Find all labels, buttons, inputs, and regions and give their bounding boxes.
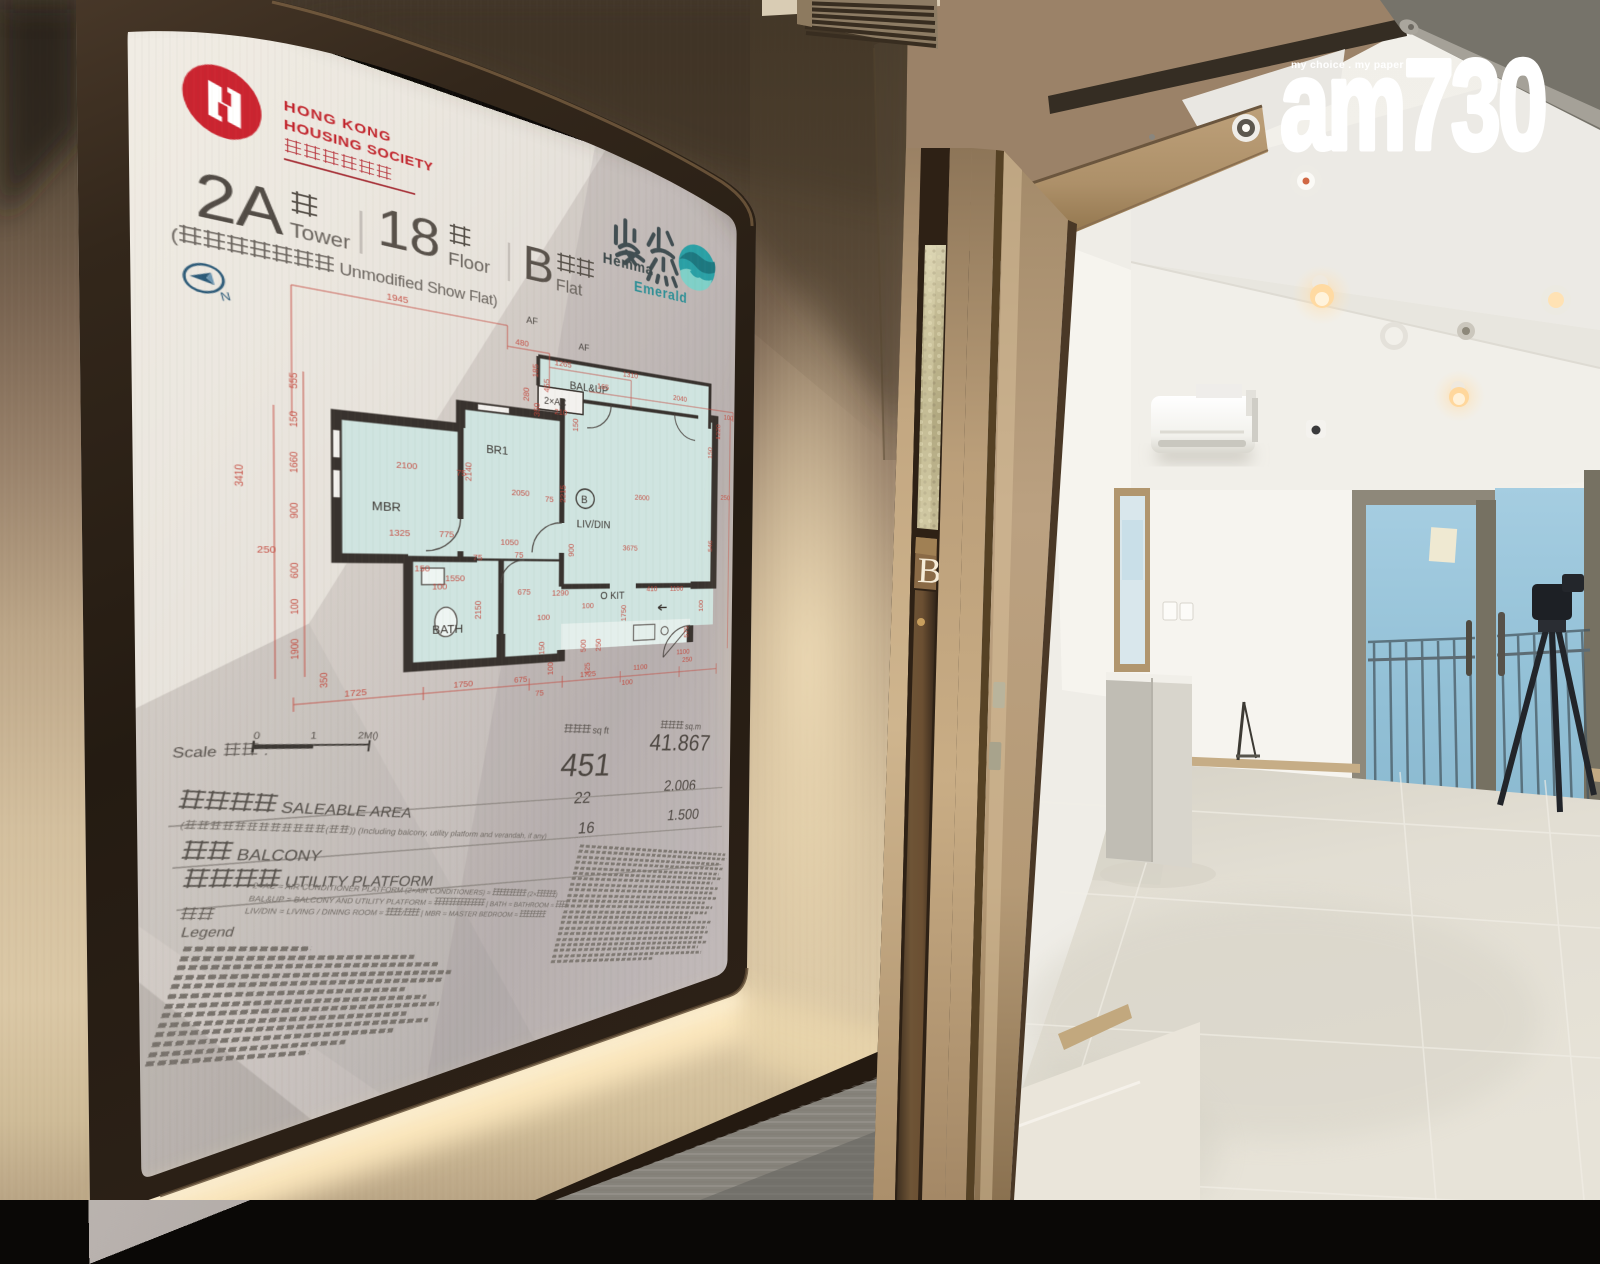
svg-text:am730: am730	[1280, 34, 1545, 177]
